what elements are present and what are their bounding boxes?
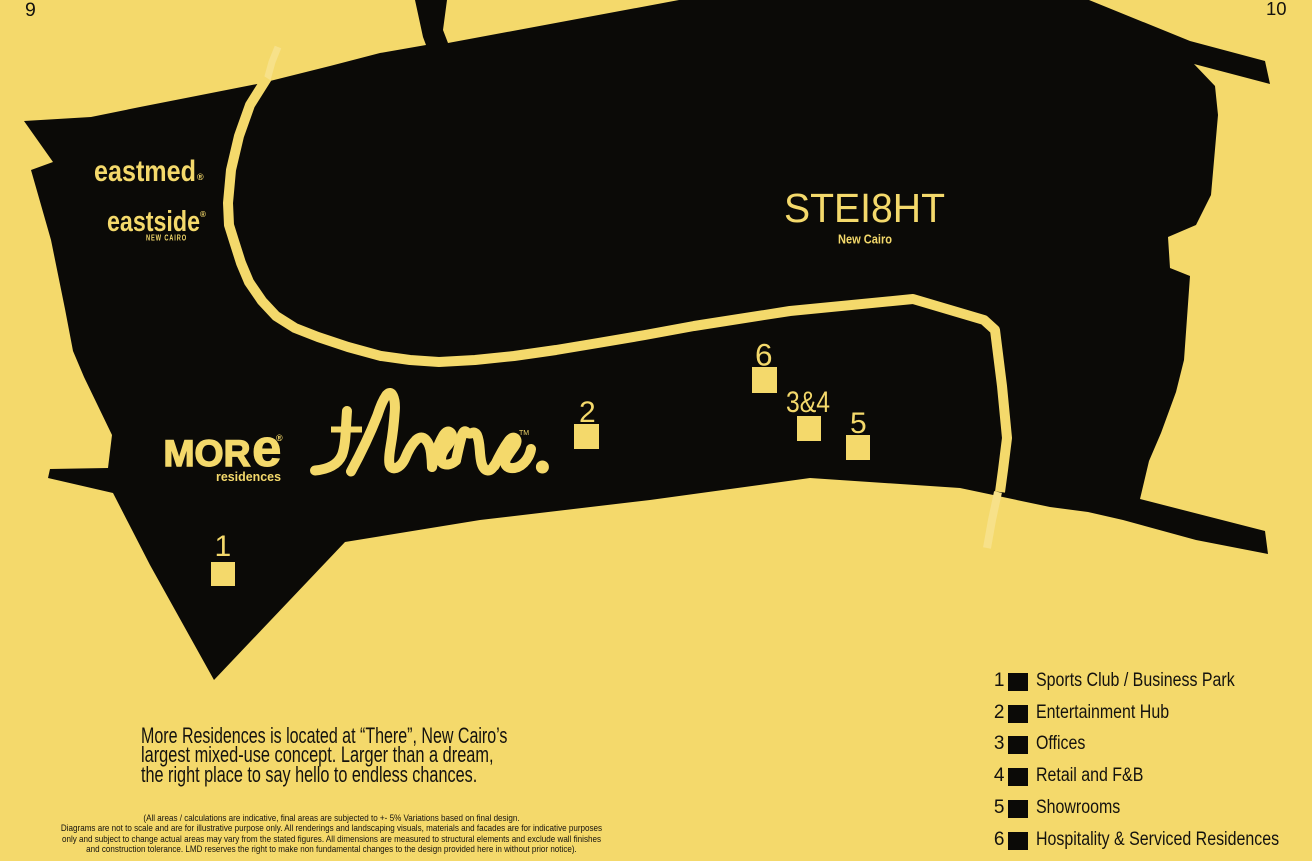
svg-text:eastmed: eastmed xyxy=(94,155,196,188)
svg-text:NEW CAIRO: NEW CAIRO xyxy=(146,234,187,243)
svg-text:MOR: MOR xyxy=(164,433,251,474)
svg-text:STEI8HT: STEI8HT xyxy=(784,185,945,231)
svg-text:3&4: 3&4 xyxy=(786,386,830,419)
svg-text:New Cairo: New Cairo xyxy=(838,233,892,247)
svg-text:TM: TM xyxy=(519,430,529,437)
svg-text:residences: residences xyxy=(216,469,281,484)
svg-text:®: ® xyxy=(276,433,283,443)
svg-text:1: 1 xyxy=(215,530,232,563)
svg-text:®: ® xyxy=(200,210,206,219)
svg-text:®: ® xyxy=(197,172,204,182)
